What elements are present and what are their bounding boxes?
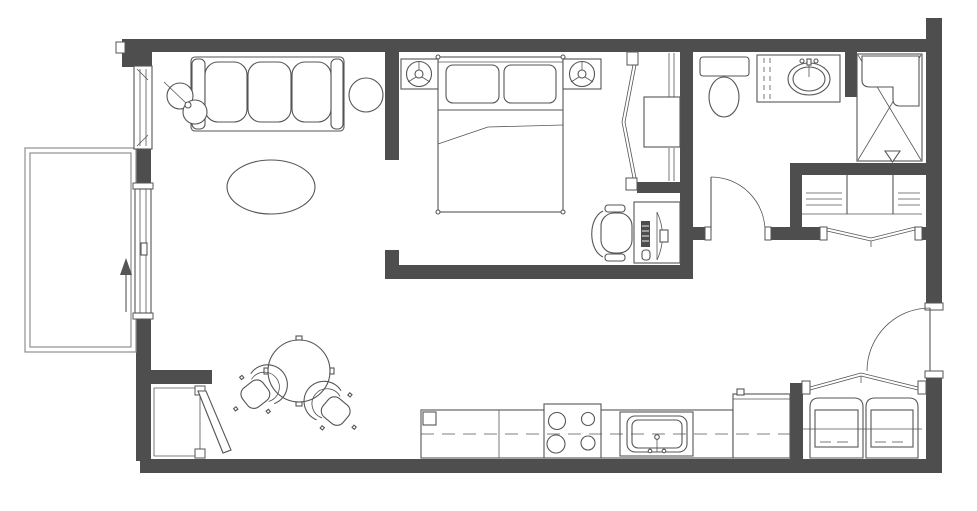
balcony-rail-inner: [30, 153, 131, 347]
wall-left-lower: [136, 315, 151, 461]
three-seat-sofa: [191, 57, 344, 131]
washer: [810, 398, 863, 458]
storage-closet: [154, 386, 231, 458]
bedroom: [401, 55, 680, 263]
living-room-window: [134, 66, 152, 149]
bedroom-closet: [622, 52, 680, 190]
dining-area: [221, 336, 371, 445]
wall-top: [128, 39, 942, 52]
storage-closet-door: [198, 391, 231, 453]
laundry-bifold-door: [802, 373, 926, 394]
chair-foot-3: [352, 425, 356, 429]
wall-tick-top-left: [116, 42, 125, 53]
dryer: [866, 398, 918, 458]
oval-coffee-table: [227, 160, 315, 214]
lamp-center: [415, 70, 423, 78]
chair-arm-top: [605, 205, 625, 212]
sofa-arm-right: [331, 59, 343, 129]
sliding-balcony-door: [133, 183, 153, 319]
faucet-handle-right: [662, 449, 666, 453]
wall-bath-south-a: [693, 227, 705, 240]
bifold-jamb-bottom: [626, 178, 637, 190]
wall-right-lower: [926, 378, 942, 473]
chair-foot-2: [348, 393, 352, 397]
chair-seat: [601, 213, 632, 253]
bed-post-3: [436, 210, 440, 214]
faucet-handle-left: [648, 449, 652, 453]
desk-area: [592, 202, 680, 263]
chair-arm-bottom: [605, 254, 625, 261]
nightstand-right: [563, 59, 601, 89]
bifold-jamb-right: [918, 381, 926, 394]
chair-seat: [238, 377, 273, 412]
laundry-closet: [802, 373, 926, 458]
table-top: [268, 340, 330, 402]
wall-shower-divider: [845, 52, 857, 97]
mouse: [642, 250, 650, 260]
wall-bedroom-partition: [385, 52, 399, 160]
table-tab-n: [296, 336, 302, 340]
chair-foot-1: [320, 426, 324, 430]
closet-shelf-box: [644, 97, 680, 147]
bifold-jamb-right: [915, 227, 922, 240]
wall-closet-floor: [637, 182, 680, 193]
bathroom: [700, 54, 922, 240]
nightstand-left: [401, 59, 438, 89]
shower: [857, 54, 922, 162]
door-handle: [141, 243, 147, 255]
wall-bedroom-lower: [385, 265, 692, 279]
closet-jamb-bottom: [195, 449, 205, 458]
bifold-jamb-top: [627, 52, 638, 65]
round-side-table: [349, 78, 383, 112]
toilet: [700, 57, 749, 117]
office-chair: [592, 205, 632, 261]
entry-jamb-bottom: [925, 371, 943, 378]
round-dining-table: [264, 336, 334, 406]
door-sill-top: [133, 183, 153, 189]
bifold-jamb-left: [820, 227, 827, 240]
lamp-center: [578, 70, 586, 78]
counter-end-block: [423, 412, 436, 425]
wall-bath-south-c: [922, 227, 926, 240]
chair-foot-2: [266, 409, 270, 413]
toilet-tank: [700, 57, 749, 76]
balcony: [25, 66, 153, 352]
pillow-right: [504, 65, 556, 103]
wall-bottom: [140, 459, 942, 473]
balcony-rail-outer: [25, 148, 136, 352]
entry-door-swing-arc: [867, 308, 930, 371]
table-tab-w: [264, 368, 268, 374]
faucet-handle-left: [800, 59, 804, 63]
bifold-panel-b: [827, 227, 915, 238]
entry: [867, 303, 943, 378]
wall-linen-closet-top: [790, 163, 926, 175]
door-jamb-left: [705, 227, 711, 240]
vanity: [757, 55, 840, 102]
wall-top-left-corner: [122, 39, 152, 67]
table-tab-e: [330, 368, 334, 374]
door-sill-bottom: [133, 313, 153, 319]
bed-post-1: [436, 55, 440, 59]
bathroom-door: [705, 177, 771, 240]
wall-right-upper: [926, 18, 942, 305]
wall-bath-south-b: [771, 227, 820, 240]
linen-closet-bifold-door: [820, 227, 922, 247]
refrigerator: [733, 389, 790, 458]
wall-laundry-left: [790, 383, 803, 459]
chair-foot-3: [234, 407, 238, 411]
toilet-bowl: [709, 77, 739, 117]
kitchen: [421, 389, 790, 458]
bifold-door-panel-b: [625, 65, 636, 178]
faucet-handle-right: [814, 59, 818, 63]
closet-interior: [154, 388, 200, 456]
refrigerator-hinge: [737, 389, 744, 395]
bed-post-2: [561, 55, 565, 59]
door-swing-arc: [711, 177, 765, 231]
entry-jamb-top: [925, 303, 943, 310]
monitor-stand: [660, 230, 668, 242]
floor-plan: [0, 0, 977, 511]
sofa-cushion-1: [205, 62, 247, 122]
faucet-body: [807, 59, 811, 65]
wall-storage-closet-top: [150, 370, 212, 384]
sofa-cushion-2: [248, 62, 291, 122]
wall-bedroom-bathroom-divider: [680, 52, 693, 279]
wall-linen-closet-left: [790, 175, 802, 227]
cooktop: [544, 404, 601, 458]
bifold-panel-a: [827, 230, 915, 241]
washer-lid: [815, 410, 858, 447]
bed-post-4: [561, 210, 565, 214]
table-tab-s: [296, 402, 302, 406]
pillow-left: [446, 65, 499, 103]
bifold-door-panel-a: [622, 65, 633, 178]
door-jamb-right: [765, 227, 771, 240]
direction-arrow: [120, 258, 132, 312]
cooktop-body: [544, 404, 601, 458]
window-frame: [134, 66, 152, 149]
bifold-panel-b: [810, 373, 918, 387]
linen-closet: [802, 175, 922, 247]
lamp-joint: [185, 102, 191, 108]
chair-foot-1: [240, 375, 244, 379]
dryer-lid: [871, 410, 913, 447]
chair-seat: [318, 394, 353, 429]
living-room: [164, 57, 383, 214]
double-bed: [436, 55, 565, 214]
faucet-base: [655, 435, 660, 440]
refrigerator-body: [733, 394, 790, 458]
bifold-jamb-left: [802, 381, 810, 394]
sofa-cushion-3: [292, 62, 331, 122]
keyboard: [641, 221, 650, 247]
arrow-head: [120, 258, 132, 275]
